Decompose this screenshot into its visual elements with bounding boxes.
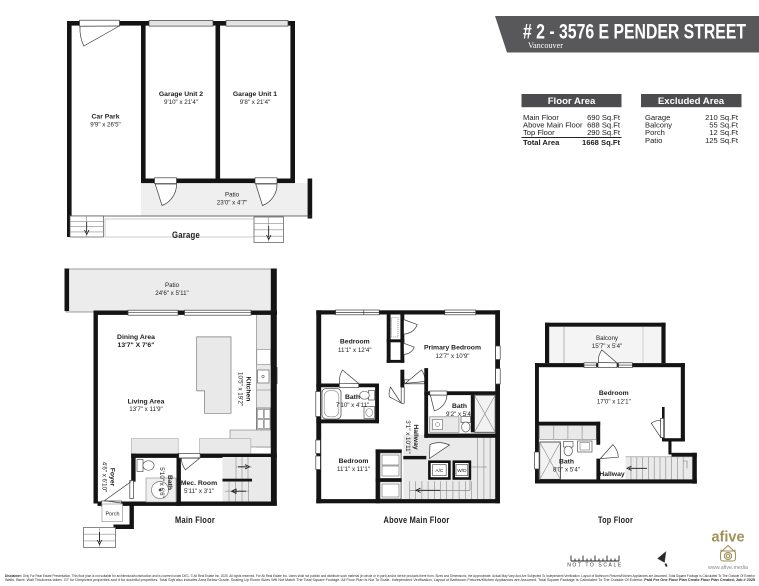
svg-text:1668 Sq.Ft: 1668 Sq.Ft <box>582 138 620 147</box>
svg-text:W/D: W/D <box>457 468 467 474</box>
svg-text:11'1" x 12'4": 11'1" x 12'4" <box>338 347 371 354</box>
svg-text:Primary Bedroom: Primary Bedroom <box>424 345 481 352</box>
svg-text:afive: afive <box>712 530 745 546</box>
svg-text:Garage: Garage <box>172 230 200 241</box>
svg-text:www.afive.media: www.afive.media <box>708 565 748 571</box>
svg-text:Kitchen: Kitchen <box>245 377 252 402</box>
svg-text:23'0" x 4'7": 23'0" x 4'7" <box>217 200 248 207</box>
svg-text:Bath: Bath <box>345 394 360 401</box>
svg-text:Garage Unit 2: Garage Unit 2 <box>159 91 203 98</box>
svg-text:Patio: Patio <box>225 192 240 199</box>
svg-text:3'1" x 10'11": 3'1" x 10'11" <box>404 420 411 453</box>
svg-text:9'2" x 5'4": 9'2" x 5'4" <box>446 411 473 418</box>
svg-text:Above Main Floor: Above Main Floor <box>384 515 450 526</box>
svg-text:Porch: Porch <box>105 512 119 518</box>
svg-text:Walls. Bsmt. Wall Thickness ta: Walls. Bsmt. Wall Thickness taken. GT fo… <box>5 578 755 582</box>
svg-text:Living Area: Living Area <box>128 399 165 406</box>
svg-text:11'1" x 11'1": 11'1" x 11'1" <box>337 466 370 473</box>
svg-text:Top Floor: Top Floor <box>598 515 633 526</box>
svg-text:10'5" x 19'2": 10'5" x 19'2" <box>237 372 244 406</box>
svg-text:8'0" x 5'4": 8'0" x 5'4" <box>553 467 580 474</box>
svg-text:125 Sq.Ft: 125 Sq.Ft <box>705 136 739 145</box>
svg-text:Bath: Bath <box>166 475 173 490</box>
svg-text:Bath: Bath <box>559 459 574 466</box>
svg-text:Foyer: Foyer <box>109 468 116 487</box>
svg-text:290 Sq.Ft: 290 Sq.Ft <box>587 128 621 137</box>
svg-text:Top Floor: Top Floor <box>523 128 555 137</box>
svg-text:Vancouver: Vancouver <box>528 41 563 50</box>
svg-text:Floor Area: Floor Area <box>548 96 596 107</box>
svg-text:Car Park: Car Park <box>92 114 120 121</box>
svg-text:Balcony: Balcony <box>596 335 619 342</box>
svg-text:Mec. Room: Mec. Room <box>181 480 217 487</box>
svg-text:Dining Area: Dining Area <box>117 334 155 341</box>
svg-text:Main Floor: Main Floor <box>175 515 215 526</box>
svg-text:A/C: A/C <box>435 468 444 474</box>
svg-text:Garage Unit 1: Garage Unit 1 <box>233 91 277 98</box>
svg-text:24'6" x 5'11": 24'6" x 5'11" <box>155 290 188 297</box>
svg-text:17'0" x 12'1": 17'0" x 12'1" <box>597 398 631 405</box>
svg-text:Bedroom: Bedroom <box>340 339 370 346</box>
svg-text:Patio: Patio <box>645 136 662 145</box>
svg-text:13'7" x 11'9": 13'7" x 11'9" <box>129 406 162 413</box>
svg-text:9'9" x 26'5": 9'9" x 26'5" <box>90 122 121 129</box>
svg-text:13'7" X 7'6": 13'7" X 7'6" <box>118 342 155 349</box>
svg-text:4'6" x 6'10": 4'6" x 6'10" <box>101 462 108 493</box>
svg-text:5'11" x 3'1": 5'11" x 3'1" <box>184 488 214 495</box>
svg-text:Hallway: Hallway <box>412 424 419 450</box>
svg-text:15'7" x 5'4": 15'7" x 5'4" <box>592 343 623 350</box>
svg-text:Patio: Patio <box>165 282 180 289</box>
svg-text:7'10" x 4'11": 7'10" x 4'11" <box>336 402 369 409</box>
svg-text:Bedroom: Bedroom <box>599 390 629 397</box>
svg-text:NOT TO SCALE: NOT TO SCALE <box>567 562 623 568</box>
svg-text:5'10" x 6'6": 5'10" x 6'6" <box>158 467 165 498</box>
svg-text:9'10" x 21'4": 9'10" x 21'4" <box>164 99 198 106</box>
svg-text:12'7" x 10'9": 12'7" x 10'9" <box>436 353 470 360</box>
svg-text:Bath: Bath <box>452 403 467 410</box>
svg-text:9'8" x 21'4": 9'8" x 21'4" <box>240 99 271 106</box>
svg-text:Bedroom: Bedroom <box>339 458 369 465</box>
svg-text:Excluded Area: Excluded Area <box>658 96 725 107</box>
svg-text:Total Area: Total Area <box>523 138 560 147</box>
svg-text:# 2 - 3576 E PENDER STREET: # 2 - 3576 E PENDER STREET <box>523 20 746 44</box>
svg-text:Hallway: Hallway <box>599 471 625 478</box>
